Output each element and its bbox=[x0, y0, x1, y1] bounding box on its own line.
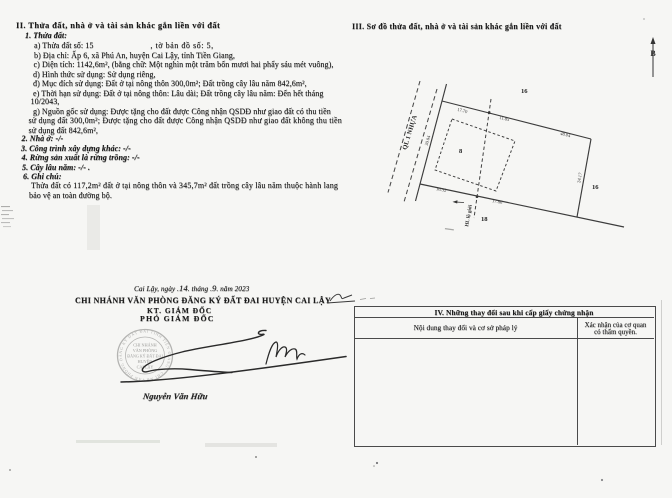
svg-text:VĂN PHÒNG: VĂN PHÒNG bbox=[133, 348, 158, 353]
svg-text:17.86: 17.86 bbox=[492, 198, 504, 205]
svg-text:48.04: 48.04 bbox=[560, 131, 572, 139]
svg-text:CHI NHÁNH: CHI NHÁNH bbox=[133, 343, 156, 348]
svg-text:B: B bbox=[650, 49, 656, 58]
svg-text:18: 18 bbox=[481, 216, 488, 223]
svg-text:16: 16 bbox=[521, 88, 528, 95]
svg-text:17.70: 17.70 bbox=[457, 107, 469, 115]
svg-text:8: 8 bbox=[459, 148, 463, 155]
svg-text:ĐĂNG KÝ ĐẤT ĐAI: ĐĂNG KÝ ĐẤT ĐAI bbox=[127, 354, 163, 359]
svg-text:HL lộ giới: HL lộ giới bbox=[464, 204, 474, 227]
svg-text:VĂN PHÒNG ĐĂNG KÝ ĐẤT ĐAI TỈNH: VĂN PHÒNG ĐĂNG KÝ ĐẤT ĐAI TỈNH TIỀN GIAN… bbox=[0, 0, 171, 382]
svg-text:QL 1 NHỰA: QL 1 NHỰA bbox=[401, 114, 418, 151]
svg-text:16.32: 16.32 bbox=[436, 186, 448, 193]
svg-text:24.17: 24.17 bbox=[576, 172, 583, 184]
svg-text:11.85: 11.85 bbox=[499, 115, 511, 122]
svg-text:16: 16 bbox=[592, 184, 599, 191]
